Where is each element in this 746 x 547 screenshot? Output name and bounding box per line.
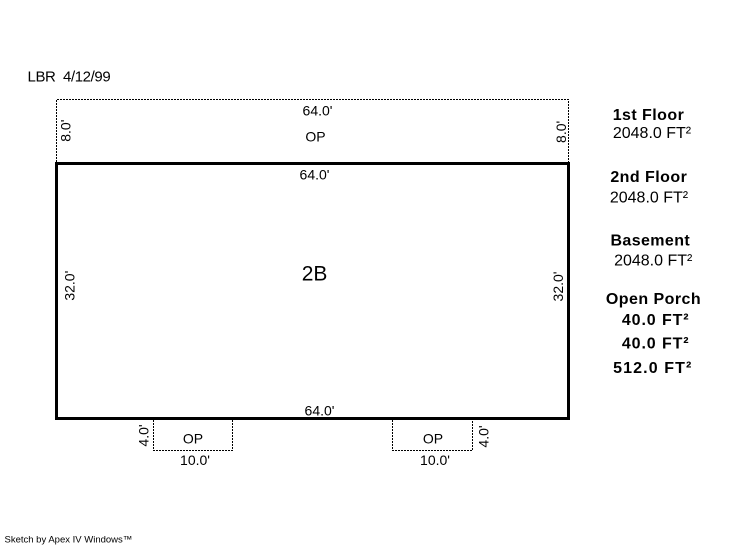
svg-text:2048.0 FT²: 2048.0 FT² — [614, 252, 693, 269]
svg-text:4.0': 4.0' — [475, 425, 491, 447]
svg-text:2048.0 FT²: 2048.0 FT² — [613, 125, 692, 142]
svg-text:64.0': 64.0' — [303, 103, 333, 119]
svg-text:Sketch by Apex IV Windows™: Sketch by Apex IV Windows™ — [5, 535, 133, 546]
svg-text:8.0': 8.0' — [553, 121, 569, 143]
svg-text:2nd Floor: 2nd Floor — [610, 169, 687, 186]
svg-text:OP: OP — [305, 129, 325, 145]
svg-text:LBR 4/12/99: LBR 4/12/99 — [28, 69, 111, 86]
svg-text:2048.0 FT²: 2048.0 FT² — [610, 190, 689, 207]
svg-text:OP: OP — [423, 431, 443, 447]
svg-text:32.0': 32.0' — [62, 271, 78, 301]
svg-text:40.0 FT²: 40.0 FT² — [622, 312, 690, 329]
svg-text:OP: OP — [183, 431, 203, 447]
svg-text:Basement: Basement — [610, 233, 690, 250]
svg-text:1st Floor: 1st Floor — [613, 107, 685, 124]
svg-text:4.0': 4.0' — [135, 424, 151, 446]
svg-text:10.0': 10.0' — [420, 452, 450, 468]
svg-text:32.0': 32.0' — [550, 272, 566, 302]
svg-text:10.0': 10.0' — [180, 452, 210, 468]
svg-text:8.0': 8.0' — [58, 120, 74, 142]
svg-text:Open Porch: Open Porch — [606, 291, 701, 308]
svg-text:64.0': 64.0' — [300, 166, 330, 182]
svg-text:64.0': 64.0' — [305, 403, 335, 419]
svg-text:40.0 FT²: 40.0 FT² — [622, 336, 690, 353]
svg-text:2B: 2B — [302, 263, 328, 286]
svg-text:512.0 FT²: 512.0 FT² — [613, 360, 692, 377]
